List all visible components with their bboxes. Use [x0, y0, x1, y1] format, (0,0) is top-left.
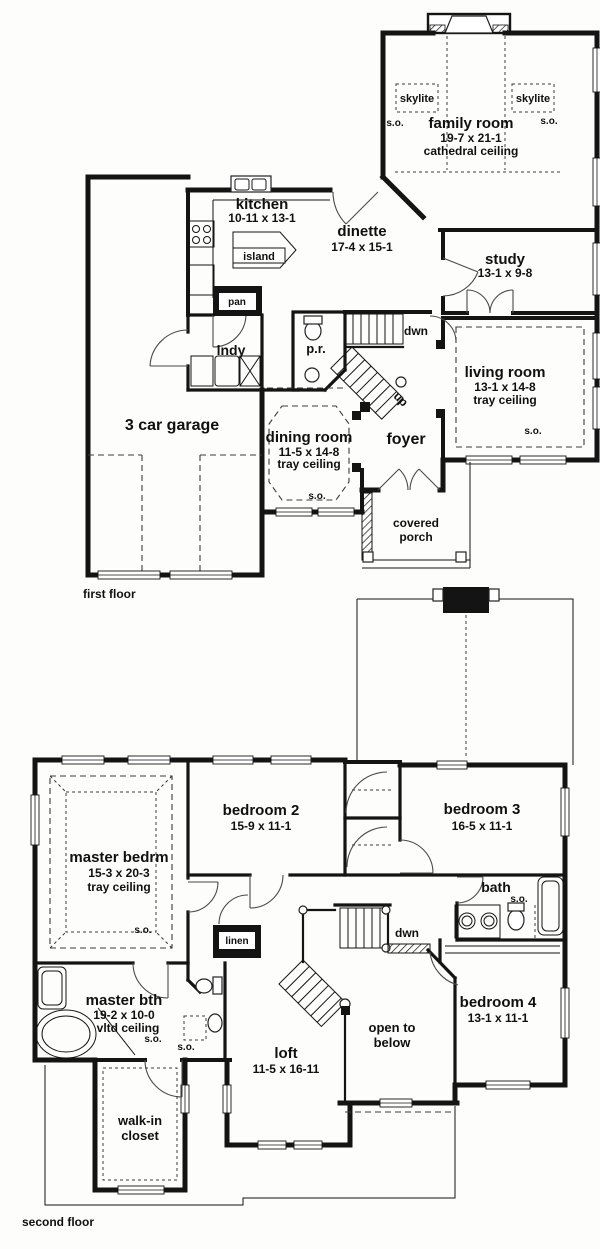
porch-roof-outline — [45, 1065, 455, 1205]
stairs-second-floor: dwn — [279, 905, 455, 1026]
so-family-left: s.o. — [386, 118, 403, 129]
second-floor-label: second floor — [22, 1215, 94, 1229]
so-master-bath-1: s.o. — [144, 1034, 161, 1045]
dining-room-label: dining room — [266, 429, 353, 446]
bedroom4-label: bedroom 4 — [460, 994, 537, 1011]
linen-label: linen — [225, 936, 248, 947]
room-bedroom4: bedroom 4 13-1 x 11-1 — [430, 940, 569, 1103]
stairs2-down-label: dwn — [395, 926, 419, 940]
pantry-label: pan — [228, 297, 246, 308]
bedroom4-dims: 13-1 x 11-1 — [468, 1011, 529, 1025]
stairs-down-label: dwn — [404, 324, 428, 338]
room-garage: 3 car garage — [88, 177, 262, 579]
living-room-dims: 13-1 x 14-8 — [474, 380, 536, 394]
room-family: family room 19-7 x 21-1 cathedral ceilin… — [383, 33, 600, 230]
room-dining: dining room 11-5 x 14-8 tray ceiling s.o… — [262, 390, 362, 516]
roof-outline — [357, 587, 573, 765]
study-dims: 13-1 x 9-8 — [478, 266, 533, 280]
kitchen-dims: 10-11 x 13-1 — [228, 211, 296, 225]
family-room-dims: 19-7 x 21-1 — [440, 131, 502, 145]
bath-label: bath — [481, 879, 511, 895]
stairs-first-floor: dwn up — [267, 312, 456, 419]
bedroom3-dims: 16-5 x 11-1 — [452, 819, 513, 833]
porch-label-line1: covered — [393, 516, 439, 530]
master-bedroom-ceiling: tray ceiling — [87, 880, 150, 894]
so-dining: s.o. — [308, 491, 325, 502]
covered-porch: covered porch — [362, 462, 470, 568]
living-room-ceiling: tray ceiling — [473, 393, 536, 407]
room-living: living room 13-1 x 14-8 tray ceiling s.o… — [436, 318, 600, 464]
so-bath: s.o. — [510, 894, 527, 905]
open-below-line1: open to — [369, 1020, 416, 1035]
room-study: study 13-1 x 9-8 — [443, 230, 600, 313]
so-living: s.o. — [524, 426, 541, 437]
open-below-line2: below — [374, 1035, 412, 1050]
first-floor-label: first floor — [83, 587, 136, 601]
floor-plan-canvas: family room 19-7 x 21-1 cathedral ceilin… — [0, 0, 600, 1249]
loft-label: loft — [274, 1045, 297, 1062]
skylite-left-label: skylite — [400, 93, 434, 105]
dinette-dims: 17-4 x 15-1 — [331, 240, 393, 254]
floor-plan-page: family room 19-7 x 21-1 cathedral ceilin… — [0, 0, 600, 1249]
loft-dims: 11-5 x 16-11 — [253, 1062, 320, 1076]
room-foyer: foyer — [362, 431, 443, 490]
room-master-bedroom: master bedrm 15-3 x 20-3 tray ceiling s.… — [50, 760, 218, 963]
powder-room-label: p.r. — [306, 341, 326, 356]
walkin-closet-line2: closet — [121, 1128, 159, 1143]
master-bath-ceiling: vltd ceiling — [97, 1021, 160, 1035]
open-to-below: open to below — [340, 1006, 457, 1112]
so-master-bedroom: s.o. — [134, 925, 151, 936]
master-bedroom-label: master bedrm — [69, 849, 168, 866]
master-bath-dims: 19-2 x 10-0 — [93, 1008, 155, 1022]
room-loft: loft 11-5 x 16-11 — [223, 1045, 350, 1149]
skylite-right-label: skylite — [516, 93, 550, 105]
room-bath: bath s.o. — [455, 877, 565, 940]
garage-label: 3 car garage — [125, 417, 219, 434]
first-floor-plan: family room 19-7 x 21-1 cathedral ceilin… — [83, 14, 600, 601]
second-floor-plan: master bedrm 15-3 x 20-3 tray ceiling s.… — [22, 587, 573, 1229]
room-master-bath: master bth 19-2 x 10-0 vltd ceiling s.o.… — [35, 963, 230, 1060]
room-powder: p.r. — [293, 312, 345, 390]
room-bedroom3: bedroom 3 16-5 x 11-1 — [400, 801, 520, 873]
so-master-bath-2: s.o. — [177, 1042, 194, 1053]
room-walkin-closet: walk-in closet — [95, 1060, 189, 1194]
master-bedroom-dims: 15-3 x 20-3 — [88, 866, 150, 880]
island-label: island — [243, 251, 275, 263]
bedroom3-label: bedroom 3 — [444, 801, 521, 818]
bedroom2-dims: 15-9 x 11-1 — [231, 819, 292, 833]
laundry-label: lndy — [217, 342, 246, 358]
linen-closet: linen — [213, 895, 261, 958]
foyer-label: foyer — [386, 431, 425, 448]
bedroom2-label: bedroom 2 — [223, 802, 300, 819]
master-bath-label: master bth — [86, 992, 163, 1009]
walkin-closet-line1: walk-in — [117, 1113, 162, 1128]
porch-label-line2: porch — [399, 530, 432, 544]
family-room-ceiling: cathedral ceiling — [424, 144, 519, 158]
room-laundry: pan lndy — [150, 286, 262, 390]
room-kitchen-dinette: kitchen 10-11 x 13-1 island dinette 17-4… — [188, 176, 393, 298]
living-room-label: living room — [465, 364, 546, 381]
dining-room-ceiling: tray ceiling — [277, 457, 340, 471]
family-room-label: family room — [428, 115, 513, 132]
hall-closets — [345, 762, 400, 875]
dinette-label: dinette — [337, 223, 386, 240]
stairs-up-label: up — [391, 389, 411, 409]
fireplace — [428, 14, 510, 33]
so-family-right: s.o. — [540, 116, 557, 127]
